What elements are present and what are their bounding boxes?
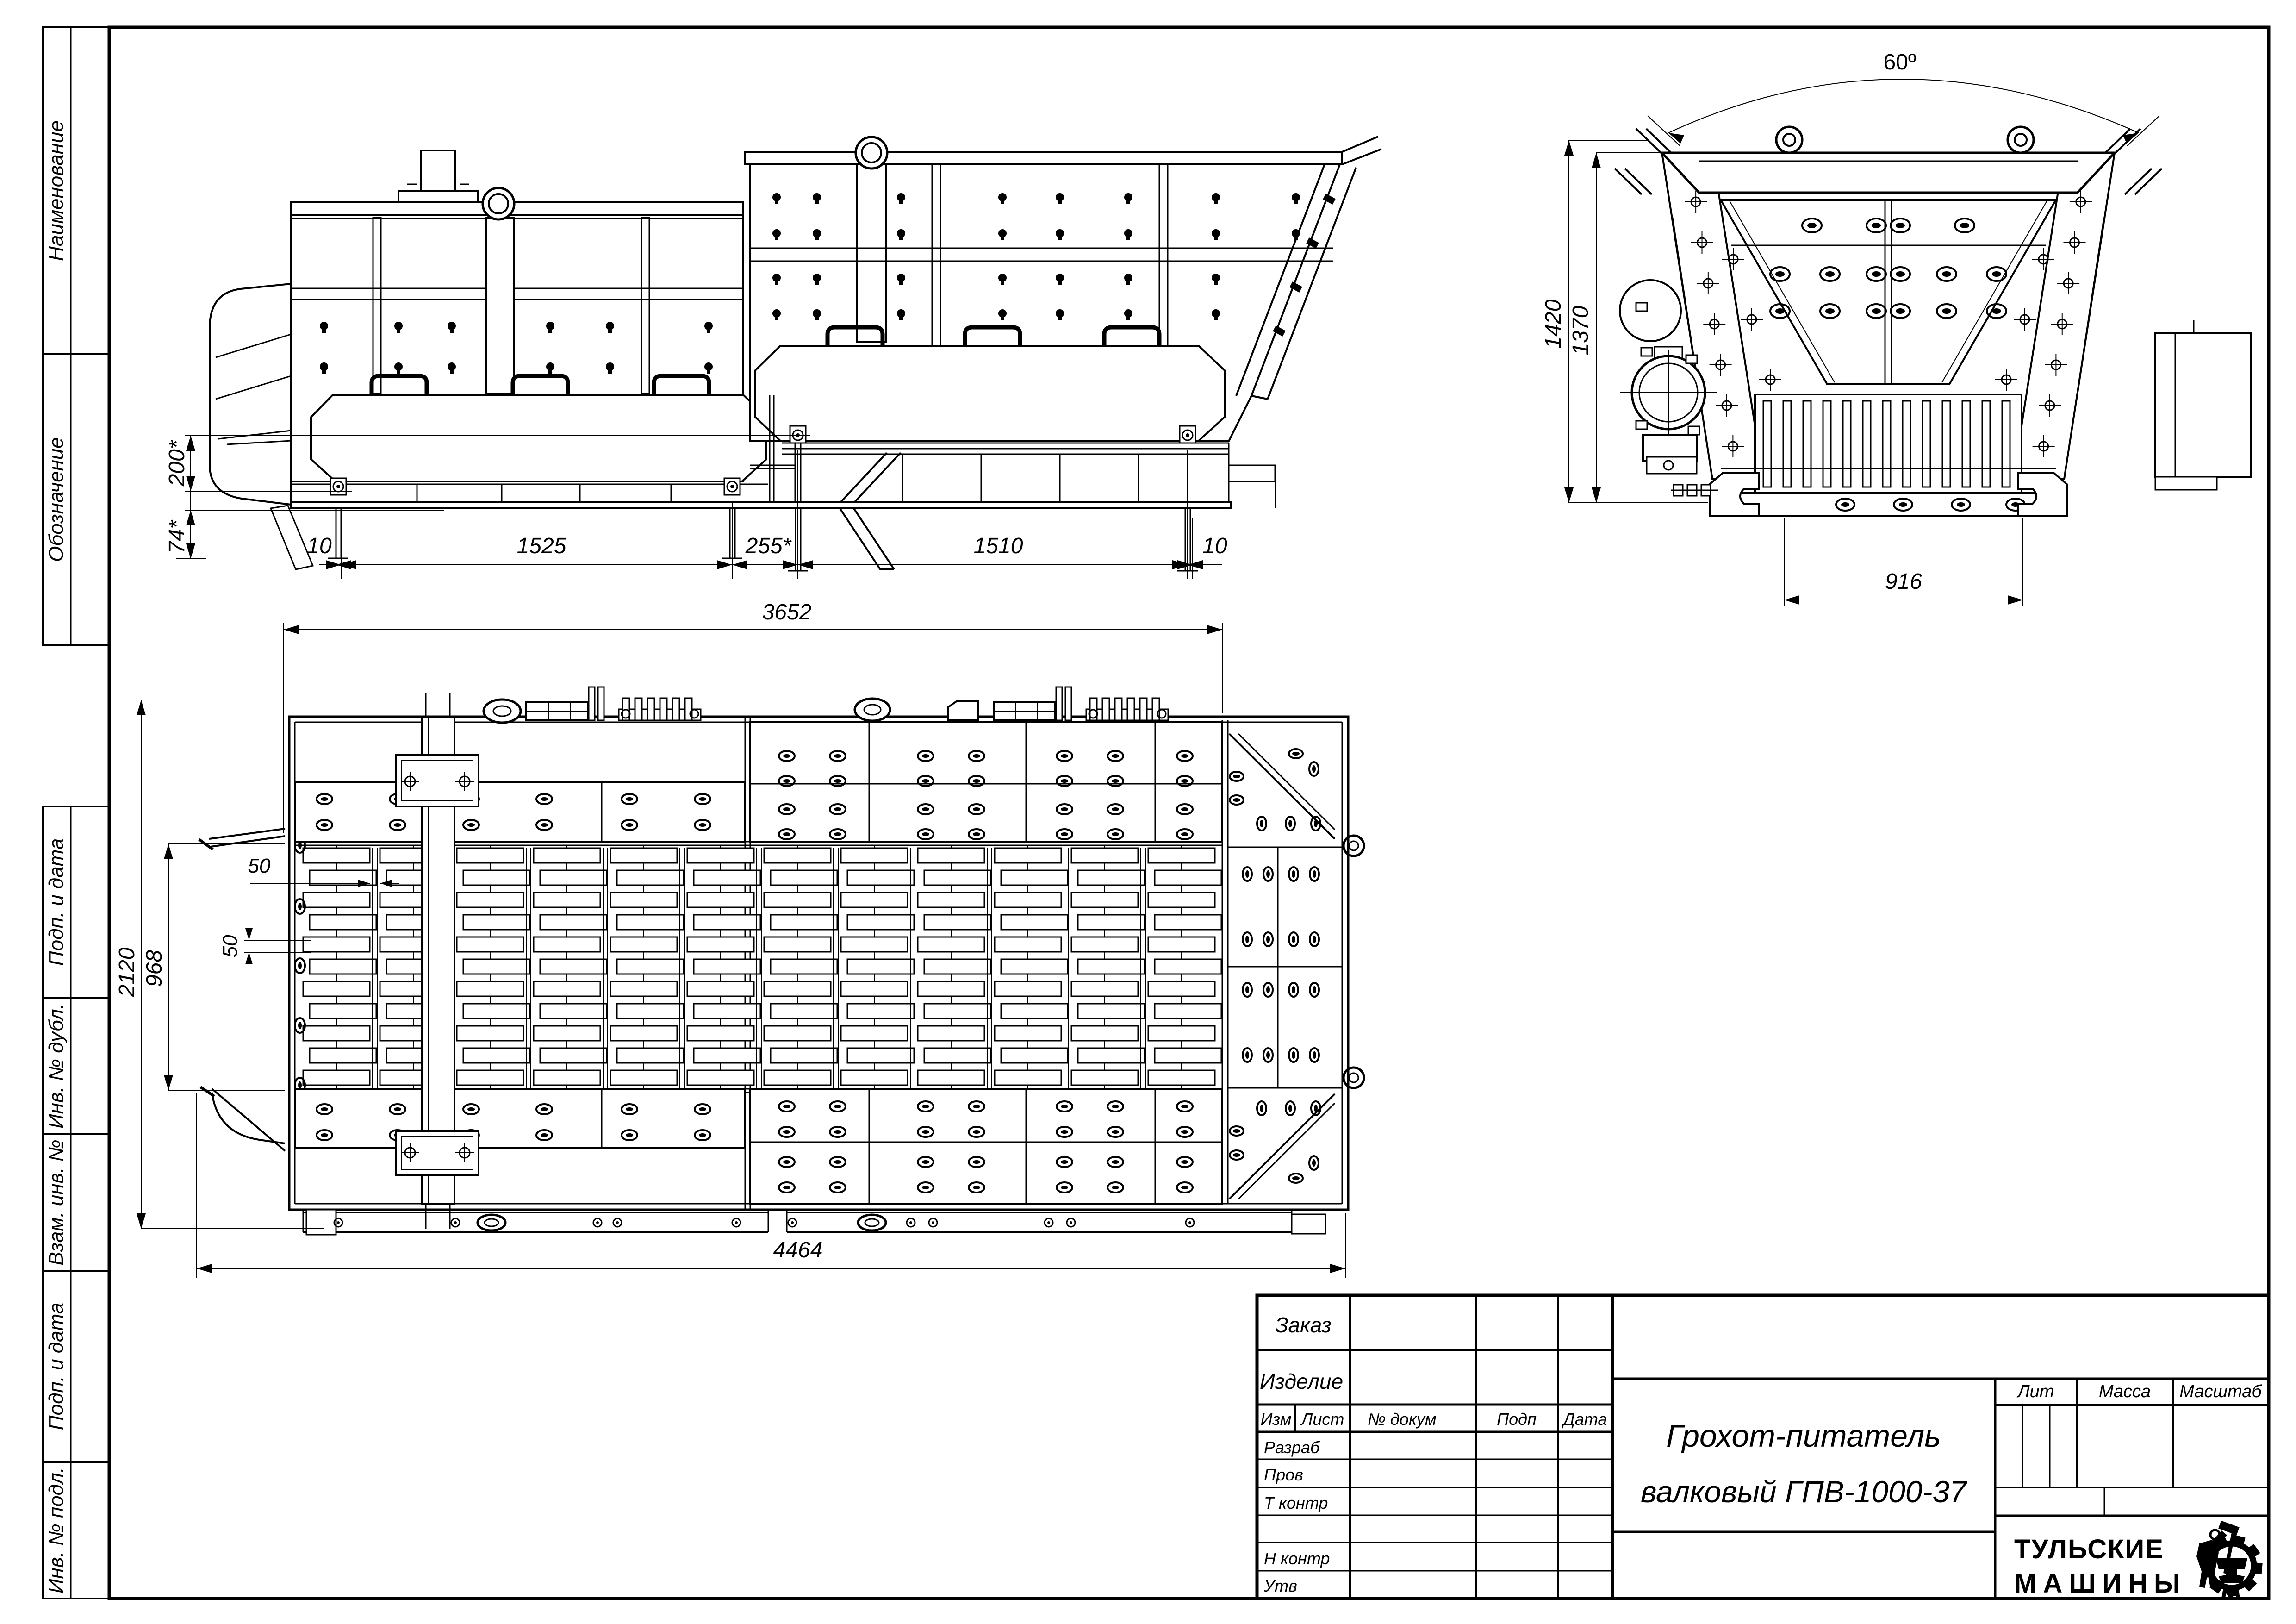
svg-text:1420: 1420 [1541, 299, 1566, 349]
svg-text:3652: 3652 [762, 600, 812, 625]
svg-text:1525: 1525 [517, 534, 566, 558]
svg-text:Заказ: Заказ [1275, 1313, 1332, 1337]
svg-text:968: 968 [142, 950, 167, 987]
svg-text:Н контр: Н контр [1264, 1549, 1330, 1568]
svg-text:200*: 200* [165, 440, 189, 487]
svg-text:10: 10 [307, 534, 332, 558]
svg-text:Обозначение: Обозначение [45, 437, 68, 562]
svg-text:Инв. № подл.: Инв. № подл. [45, 1467, 68, 1593]
svg-text:ТУЛЬСКИЕ: ТУЛЬСКИЕ [2014, 1534, 2164, 1564]
svg-text:50: 50 [248, 855, 271, 877]
svg-text:Подп: Подп [1497, 1410, 1537, 1429]
svg-text:Изм: Изм [1261, 1410, 1292, 1429]
svg-text:валковый ГПВ-1000-37: валковый ГПВ-1000-37 [1641, 1474, 1967, 1509]
svg-text:Инв. № дубл.: Инв. № дубл. [45, 1003, 68, 1129]
svg-text:Наименование: Наименование [45, 120, 68, 261]
svg-text:Пров: Пров [1264, 1465, 1303, 1484]
svg-text:255*: 255* [745, 534, 792, 558]
svg-text:Масса: Масса [2099, 1382, 2151, 1401]
svg-text:Грохот-питатель: Грохот-питатель [1666, 1418, 1941, 1454]
svg-text:60º: 60º [1884, 50, 1916, 75]
svg-text:Разраб: Разраб [1264, 1438, 1320, 1457]
svg-text:916: 916 [1885, 569, 1922, 594]
svg-text:Масштаб: Масштаб [2179, 1382, 2262, 1401]
svg-text:Подп. и дата: Подп. и дата [45, 838, 68, 966]
svg-text:10: 10 [1202, 534, 1227, 558]
svg-text:74*: 74* [165, 520, 189, 554]
svg-text:Т контр: Т контр [1264, 1493, 1328, 1512]
svg-text:4464: 4464 [773, 1238, 823, 1262]
svg-text:Изделие: Изделие [1260, 1369, 1343, 1393]
svg-text:2120: 2120 [115, 947, 139, 997]
svg-text:Взам. инв. №: Взам. инв. № [45, 1139, 68, 1265]
svg-text:Дата: Дата [1562, 1410, 1607, 1429]
svg-text:Лист: Лист [1300, 1410, 1344, 1429]
svg-text:1370: 1370 [1568, 306, 1593, 355]
svg-text:МАШИНЫ: МАШИНЫ [2014, 1568, 2187, 1599]
svg-text:Подп. и дата: Подп. и дата [45, 1303, 68, 1430]
svg-text:№ докум: № докум [1368, 1410, 1437, 1429]
svg-text:1510: 1510 [974, 534, 1023, 558]
svg-text:Утв: Утв [1263, 1576, 1297, 1595]
svg-text:Лит: Лит [2016, 1382, 2054, 1401]
svg-text:50: 50 [219, 935, 242, 957]
